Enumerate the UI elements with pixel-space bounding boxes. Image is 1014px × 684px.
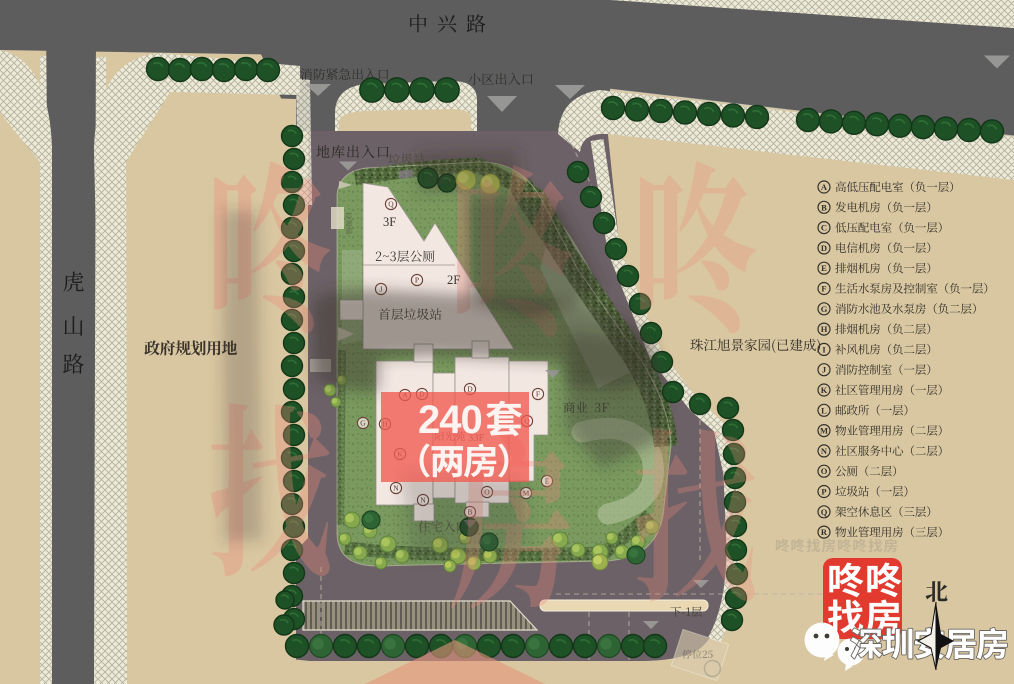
svg-text:D: D [821,243,827,253]
svg-text:L: L [821,405,827,415]
svg-text:K: K [821,385,828,395]
svg-text:A: A [821,182,828,192]
svg-text:240: 240 [418,398,482,442]
svg-text:O: O [821,466,828,476]
svg-text:G: G [821,304,828,314]
svg-text:F: F [536,390,540,399]
svg-text:2F: 2F [447,273,460,287]
svg-text:C: C [821,223,827,233]
svg-text:N: N [821,446,828,456]
svg-text:G: G [360,419,366,428]
svg-text:E: E [821,263,827,273]
svg-text:Q: Q [821,507,828,517]
svg-text:P: P [821,487,826,497]
svg-text:N: N [393,484,399,493]
svg-text:Q: Q [388,200,394,209]
svg-text:H: H [821,324,828,334]
svg-text:P: P [415,276,419,285]
svg-text:R: R [821,527,828,537]
svg-text:B: B [821,202,827,212]
svg-text:F: F [821,284,826,294]
svg-text:3F: 3F [383,215,396,229]
svg-text:M: M [820,426,828,436]
